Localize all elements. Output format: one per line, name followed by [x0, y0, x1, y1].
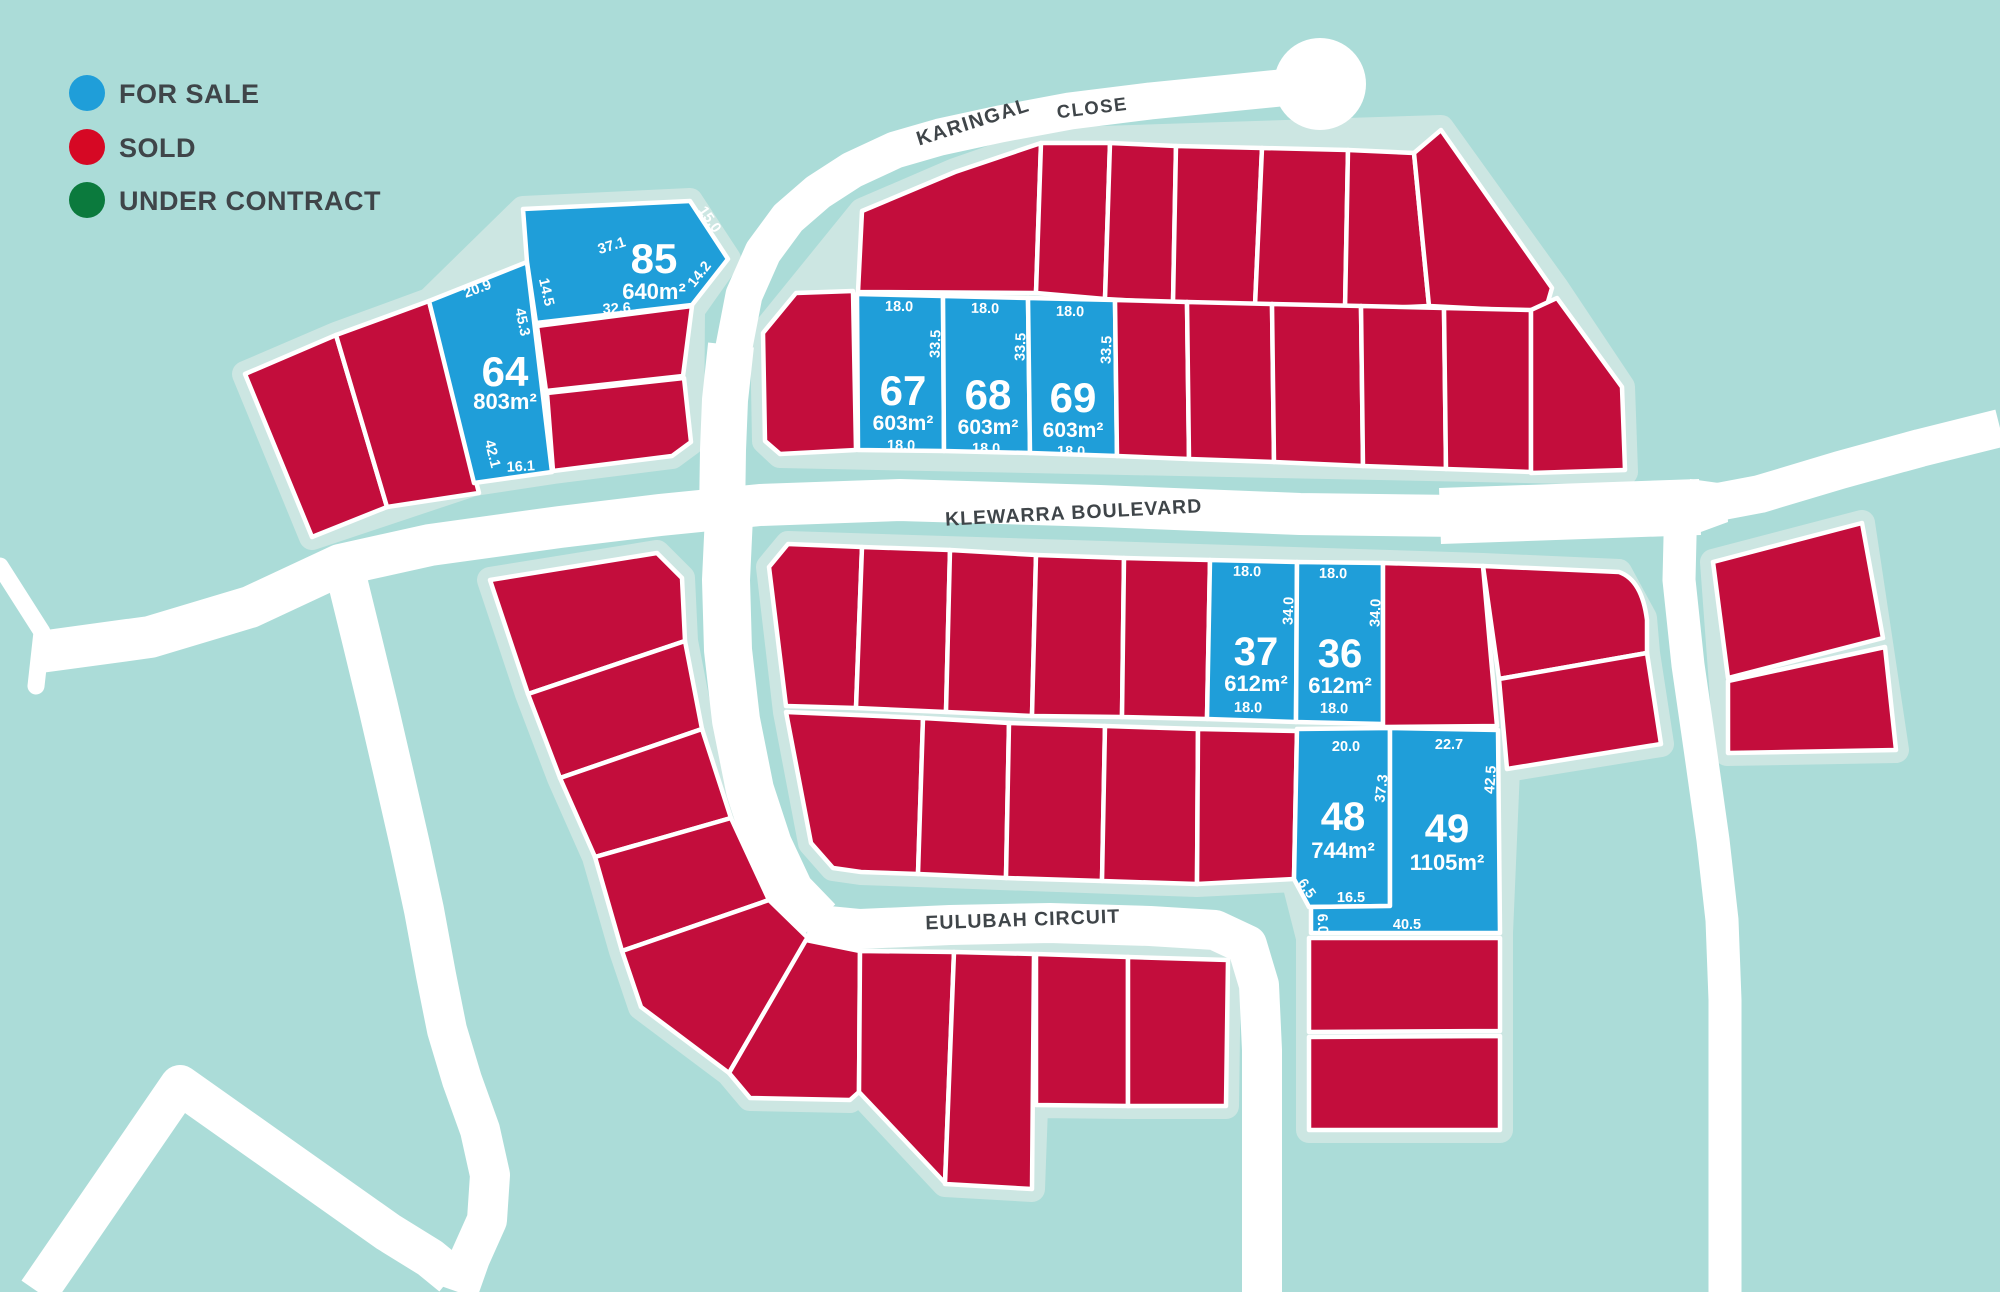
svg-text:603m²: 603m²	[958, 416, 1019, 439]
svg-text:22.7: 22.7	[1435, 737, 1463, 753]
svg-text:34.0: 34.0	[1281, 596, 1298, 625]
svg-text:33.5: 33.5	[928, 329, 945, 358]
svg-text:67: 67	[880, 367, 927, 414]
svg-text:18.0: 18.0	[885, 299, 914, 315]
svg-text:34.0: 34.0	[1368, 598, 1385, 627]
svg-text:37.3: 37.3	[1372, 774, 1391, 804]
svg-text:18.0: 18.0	[1320, 701, 1349, 717]
svg-text:FOR SALE: FOR SALE	[119, 79, 260, 109]
svg-text:803m²: 803m²	[473, 389, 537, 414]
svg-text:603m²: 603m²	[1043, 419, 1104, 442]
svg-text:48: 48	[1321, 795, 1366, 839]
svg-text:33.5: 33.5	[1013, 332, 1030, 361]
svg-text:37: 37	[1234, 630, 1279, 674]
svg-text:42.5: 42.5	[1482, 765, 1500, 794]
svg-text:36: 36	[1318, 632, 1363, 676]
svg-text:85: 85	[631, 235, 678, 282]
svg-text:6.0: 6.0	[1314, 914, 1331, 935]
svg-text:18.0: 18.0	[887, 438, 916, 454]
svg-text:40.5: 40.5	[1393, 917, 1421, 933]
svg-text:18.0: 18.0	[1234, 700, 1263, 716]
svg-text:18.0: 18.0	[972, 441, 1001, 457]
svg-text:1105m²: 1105m²	[1410, 850, 1485, 875]
svg-text:18.0: 18.0	[1056, 304, 1085, 320]
svg-text:603m²: 603m²	[873, 412, 934, 435]
svg-text:SOLD: SOLD	[119, 133, 196, 163]
svg-text:16.5: 16.5	[1337, 890, 1365, 906]
svg-text:18.0: 18.0	[1057, 444, 1086, 460]
svg-text:18.0: 18.0	[1319, 566, 1348, 582]
svg-text:640m²: 640m²	[622, 279, 686, 304]
svg-text:33.5: 33.5	[1099, 335, 1116, 364]
svg-text:64: 64	[482, 348, 529, 395]
svg-text:744m²: 744m²	[1311, 838, 1375, 863]
svg-text:69: 69	[1050, 374, 1097, 421]
svg-text:612m²: 612m²	[1224, 671, 1288, 696]
svg-text:18.0: 18.0	[1233, 564, 1262, 580]
svg-text:68: 68	[965, 371, 1012, 418]
svg-text:UNDER CONTRACT: UNDER CONTRACT	[119, 186, 381, 216]
svg-text:16.1: 16.1	[506, 458, 535, 475]
svg-text:18.0: 18.0	[971, 301, 1000, 317]
svg-text:612m²: 612m²	[1308, 673, 1372, 698]
svg-text:49: 49	[1425, 807, 1470, 851]
svg-text:32.6: 32.6	[602, 300, 631, 317]
svg-text:20.0: 20.0	[1332, 739, 1360, 755]
